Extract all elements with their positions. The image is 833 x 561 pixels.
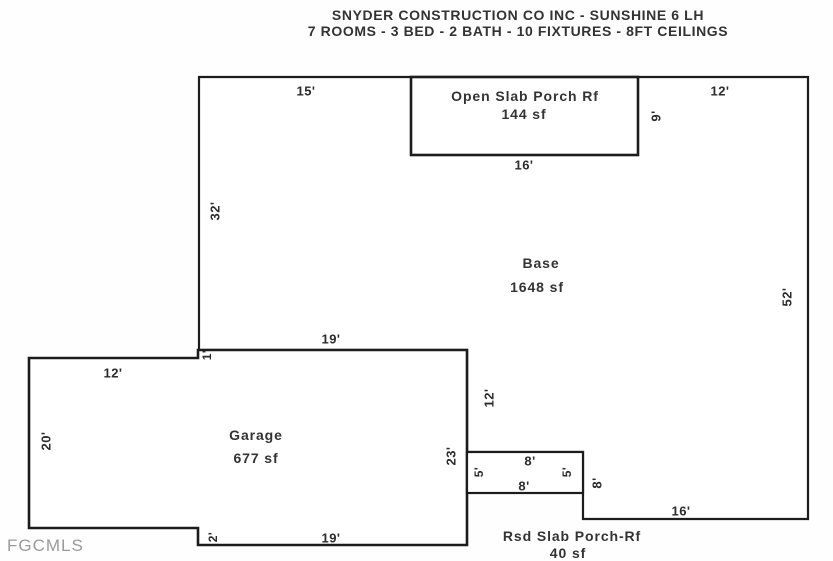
base-name: Base	[522, 255, 559, 271]
garage-area: 677 sf	[233, 450, 278, 466]
mls-watermark: FGCMLS	[7, 536, 84, 556]
dim-garage-bottom-jog: 2'	[206, 532, 220, 543]
dim-base-left: 32'	[208, 201, 223, 220]
dim-garage-inner-top: 19'	[321, 332, 340, 347]
rsd-porch-name: Rsd Slab Porch-Rf	[503, 528, 641, 544]
open-porch-name: Open Slab Porch Rf	[451, 88, 599, 104]
dim-base-top-left: 15'	[296, 84, 315, 99]
dim-garage-top-left: 12'	[103, 366, 122, 381]
dim-base-garage-wall: 12'	[482, 388, 497, 407]
base-area: 1648 sf	[510, 279, 564, 295]
dim-base-left-jog: 1'	[200, 350, 214, 361]
garage-outline	[29, 350, 467, 545]
dim-garage-bottom: 19'	[321, 531, 340, 546]
dim-base-right: 52'	[780, 287, 795, 306]
floorplan-outline	[0, 0, 833, 561]
dim-rsd-porch-top: 8'	[524, 454, 535, 469]
dim-open-porch-right: 9'	[649, 110, 664, 121]
dim-garage-right: 23'	[444, 446, 459, 465]
dim-rsd-porch-bottom: 8'	[518, 479, 529, 494]
dim-base-top-right: 12'	[710, 84, 729, 99]
rsd-porch-area: 40 sf	[550, 545, 586, 561]
open-porch-area: 144 sf	[501, 106, 546, 122]
dim-base-step-right: 8'	[590, 477, 605, 488]
dim-rsd-porch-right: 5'	[560, 467, 574, 478]
garage-name: Garage	[229, 427, 283, 443]
dim-garage-left: 20'	[39, 431, 54, 450]
dim-open-porch-bottom: 16'	[514, 158, 533, 173]
dim-base-bottom: 16'	[671, 504, 690, 519]
floorplan-sketch: SNYDER CONSTRUCTION CO INC - SUNSHINE 6 …	[0, 0, 833, 561]
dim-rsd-porch-left: 5'	[472, 467, 486, 478]
